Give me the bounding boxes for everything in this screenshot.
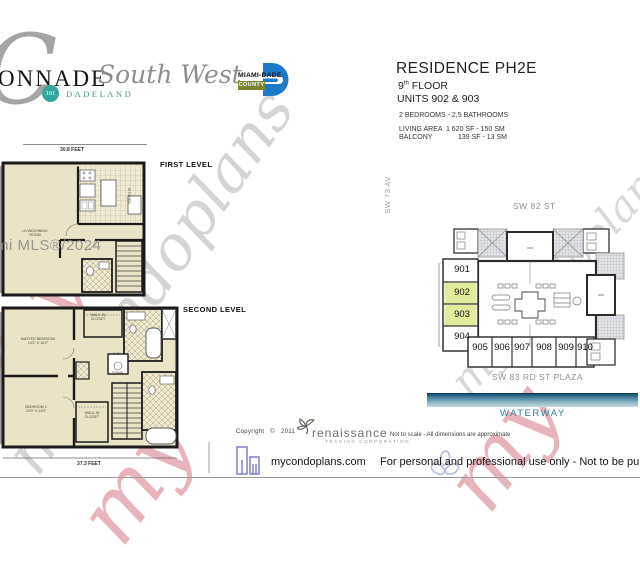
unit-902-highlighted: 902	[447, 287, 477, 298]
bedroom2-dim: 12'0" X 14'0"	[16, 409, 56, 413]
living-dining-line2: ROOM	[22, 233, 48, 237]
residence-units: UNITS 902 & 903	[397, 93, 479, 105]
buildings-icon	[236, 446, 264, 476]
watermark-script-red-site: my	[425, 367, 580, 529]
second-level-width-dim: 37.3 FEET	[69, 461, 109, 467]
copyright-symbol: ©	[270, 429, 275, 435]
waterway-label: WATERWAY	[500, 408, 566, 419]
usage-notice: For personal and professional use only -…	[380, 456, 640, 468]
waterway-bar	[427, 393, 638, 407]
master-bedroom-label: MASTER BEDROOM 14'2" X 16'2"	[18, 337, 58, 346]
copyright-year: 2011	[281, 429, 295, 435]
living-area-row: LIVING AREA 1 620 SF - 150 SM	[399, 126, 505, 133]
balcony-value: 139 SF - 13 SM	[458, 134, 507, 141]
kitchen-label: KITCHEN	[127, 188, 131, 204]
living-area-value: 1 620 SF - 150 SM	[446, 126, 505, 133]
brand-badge-dadeland: DADELAND	[66, 89, 133, 99]
living-area-label: LIVING AREA	[399, 126, 444, 133]
county-logo-county: COUNTY	[238, 81, 265, 90]
miami-dade-d-icon	[263, 63, 293, 98]
unit-910: 910	[570, 342, 600, 353]
first-level-plan-drawing	[0, 140, 160, 305]
condo-flyer-page: { "brand": { "big_c": "C", "name": "ONNA…	[0, 0, 640, 480]
second-level-plan-drawing	[0, 300, 215, 478]
first-level-width-dim: 30.8 FEET	[52, 147, 92, 153]
washer-dryer-label: W/D	[113, 352, 120, 356]
living-dining-label: LIVING/DINING ROOM	[22, 229, 48, 238]
brand-script-southwest: South West	[98, 60, 242, 89]
walkin-closet2-label: WALK-IN CLOSET	[81, 411, 103, 420]
unit-901: 901	[447, 264, 477, 275]
walkin-closet1-label: WALK-IN CLOSET	[87, 313, 109, 322]
unit-903-highlighted: 903	[447, 309, 477, 320]
copyright-line: Copyright © 2011	[236, 429, 295, 435]
walkin2-line2: CLOSET	[81, 415, 103, 419]
balcony-label: BALCONY	[399, 134, 444, 141]
stairs-down-label: DOWN	[112, 371, 123, 375]
scale-disclaimer: Not to scale - All dimensions are approx…	[390, 432, 510, 438]
residence-title: RESIDENCE PH2E	[396, 60, 537, 78]
floor-ordinal: th	[404, 81, 409, 87]
floor-word: FLOOR	[412, 80, 448, 92]
brand-badge-101-icon: 101	[42, 85, 59, 102]
county-logo-name: MIAMI-DADE	[238, 72, 282, 79]
website-url: mycondoplans.com	[271, 456, 366, 468]
renaissance-name: renaissance	[312, 426, 388, 440]
renaissance-subtitle: TRADING CORPORATION	[325, 439, 410, 444]
bottom-divider	[0, 477, 640, 478]
first-level-label: FIRST LEVEL	[160, 160, 212, 169]
residence-bed-bath: 2 BEDROOMS - 2,5 BATHROOMS	[399, 112, 508, 119]
master-bedroom-dim: 14'2" X 16'2"	[18, 341, 58, 345]
balcony-row: BALCONY 139 SF - 13 SM	[399, 134, 507, 141]
unit-904: 904	[447, 331, 477, 342]
residence-floor: 9th FLOOR	[398, 80, 448, 92]
bedroom2-label: BEDROOM 2 12'0" X 14'0"	[16, 405, 56, 414]
walkin1-line2: CLOSET	[87, 317, 109, 321]
copyright-word: Copyright	[236, 429, 264, 435]
street-sw83rd-plaza: SW 83 RD ST PLAZA	[492, 372, 583, 382]
second-level-label: SECOND LEVEL	[183, 305, 246, 314]
street-sw73av: SW 73 AV	[383, 176, 392, 214]
